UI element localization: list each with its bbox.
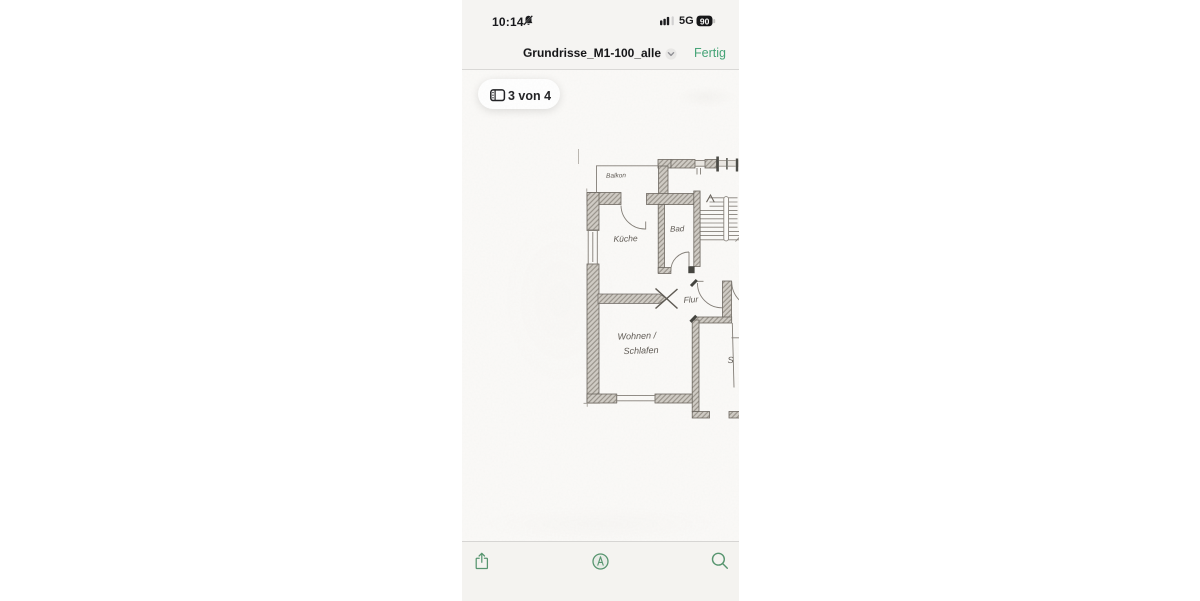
svg-text:Balkon: Balkon <box>606 172 626 180</box>
svg-text:Wohnen /: Wohnen / <box>617 330 657 341</box>
svg-text:Schlafen: Schlafen <box>623 345 658 356</box>
svg-text:Küche: Küche <box>613 233 638 244</box>
svg-text:Flur: Flur <box>683 294 699 305</box>
svg-text:90: 90 <box>699 16 709 26</box>
svg-text:Bad: Bad <box>670 224 685 234</box>
svg-text:S: S <box>727 355 733 365</box>
